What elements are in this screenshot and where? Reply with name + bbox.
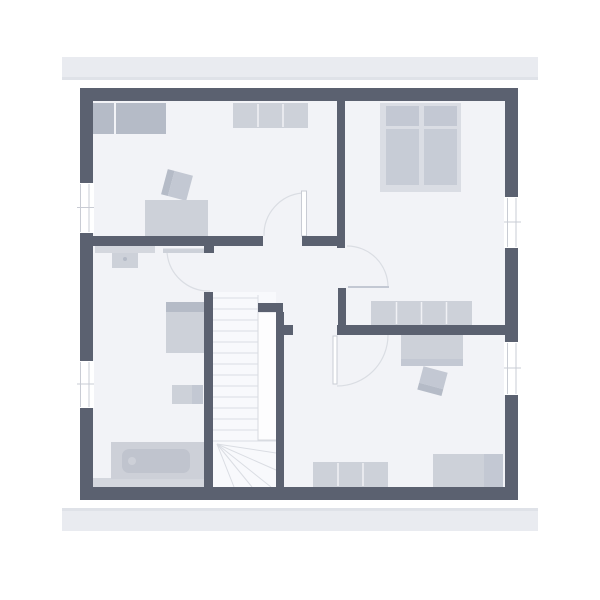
desk-bottom-room-edge xyxy=(401,359,463,366)
wc-body xyxy=(172,385,192,404)
wall-bedroom-west xyxy=(338,288,346,325)
bath-counter xyxy=(95,245,155,253)
wall-stair-east xyxy=(276,312,284,487)
door-leaf-bathroom xyxy=(163,249,209,254)
door-leaf-bottom-room xyxy=(333,336,337,384)
bed-mattress-left xyxy=(386,129,419,185)
bed-pillow-left xyxy=(386,106,419,126)
shower-body xyxy=(166,312,204,353)
wall-exterior-top xyxy=(80,88,518,101)
desk-bottom-room xyxy=(401,334,463,359)
floor-plan-page xyxy=(0,0,600,600)
cabinet-bottom-right xyxy=(484,454,503,487)
roof-eave-top-shadow xyxy=(62,77,538,80)
roof-eave-bottom xyxy=(62,508,538,531)
wall-stair-cap xyxy=(258,303,283,312)
floor-plan-canvas xyxy=(0,0,600,600)
roof-eave-bottom-shadow xyxy=(62,508,538,511)
bathtub-drain xyxy=(128,457,136,465)
wardrobe-right-section xyxy=(116,103,166,134)
washbasin-drain xyxy=(123,257,127,261)
wall-door-chunk xyxy=(283,325,293,335)
bathroom-floor-strip xyxy=(93,478,213,487)
roof-eave-top xyxy=(62,57,538,80)
dresser-top xyxy=(233,103,308,128)
shower-top xyxy=(166,302,204,312)
wall-stair-west xyxy=(204,292,213,487)
wall-bath-door-stub xyxy=(204,245,214,253)
bed-mattress-right xyxy=(424,129,457,185)
door-leaf-top-left-room xyxy=(302,191,307,236)
wall-hall-north xyxy=(83,236,263,246)
wardrobe-bottom-right xyxy=(433,454,484,487)
desk xyxy=(145,200,208,237)
stair-void xyxy=(258,312,277,440)
dresser-bottom xyxy=(313,462,388,487)
wardrobe-left-section xyxy=(93,103,114,134)
wall-exterior-right xyxy=(505,88,518,500)
wall-top-rooms-divider xyxy=(337,101,345,248)
bed-pillow-right xyxy=(424,106,457,126)
wall-exterior-bottom xyxy=(80,487,518,500)
wc-cistern xyxy=(192,385,203,404)
wall-exterior-left xyxy=(80,88,93,500)
wall-bedroom-south xyxy=(337,325,518,335)
